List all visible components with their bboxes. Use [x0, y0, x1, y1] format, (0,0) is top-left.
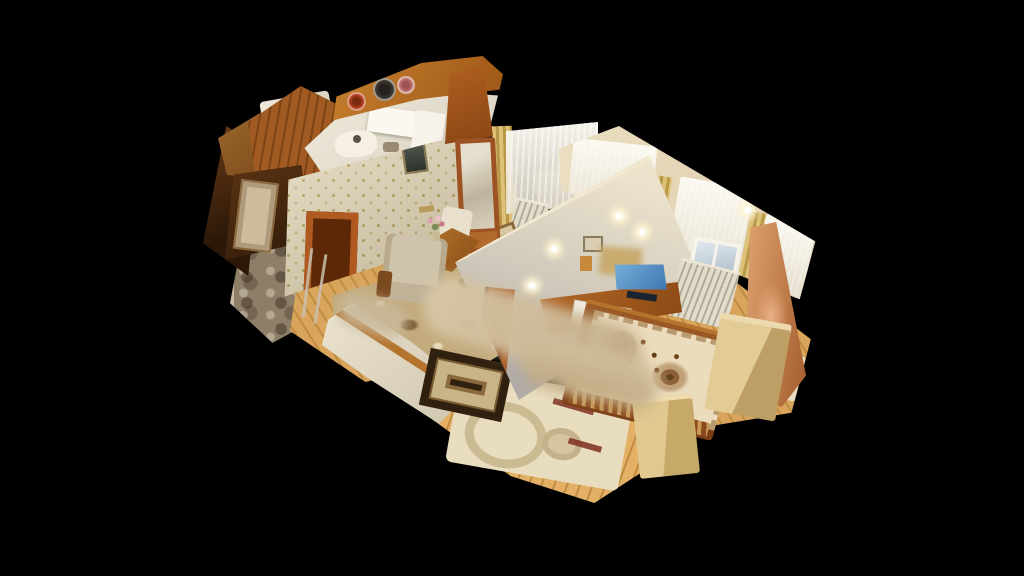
- kitchen-sink: [383, 142, 399, 152]
- tv-base: [627, 291, 658, 302]
- small-picture: [580, 256, 592, 271]
- spotlight-glow: [540, 235, 568, 263]
- wall-plaque: [419, 205, 435, 213]
- screenshot-root: [0, 0, 1024, 576]
- kitchen-table: [334, 129, 378, 159]
- armchair-armrest: [376, 270, 393, 297]
- kettle: [353, 135, 361, 143]
- vase: [433, 232, 440, 241]
- decorative-plate: [373, 78, 396, 101]
- wall-sconce-glow: [734, 196, 762, 224]
- dollhouse-3d-viewport[interactable]: [0, 0, 1024, 576]
- spotlight-glow: [628, 218, 656, 246]
- decorative-plate: [397, 76, 415, 94]
- decorative-plate: [347, 92, 366, 111]
